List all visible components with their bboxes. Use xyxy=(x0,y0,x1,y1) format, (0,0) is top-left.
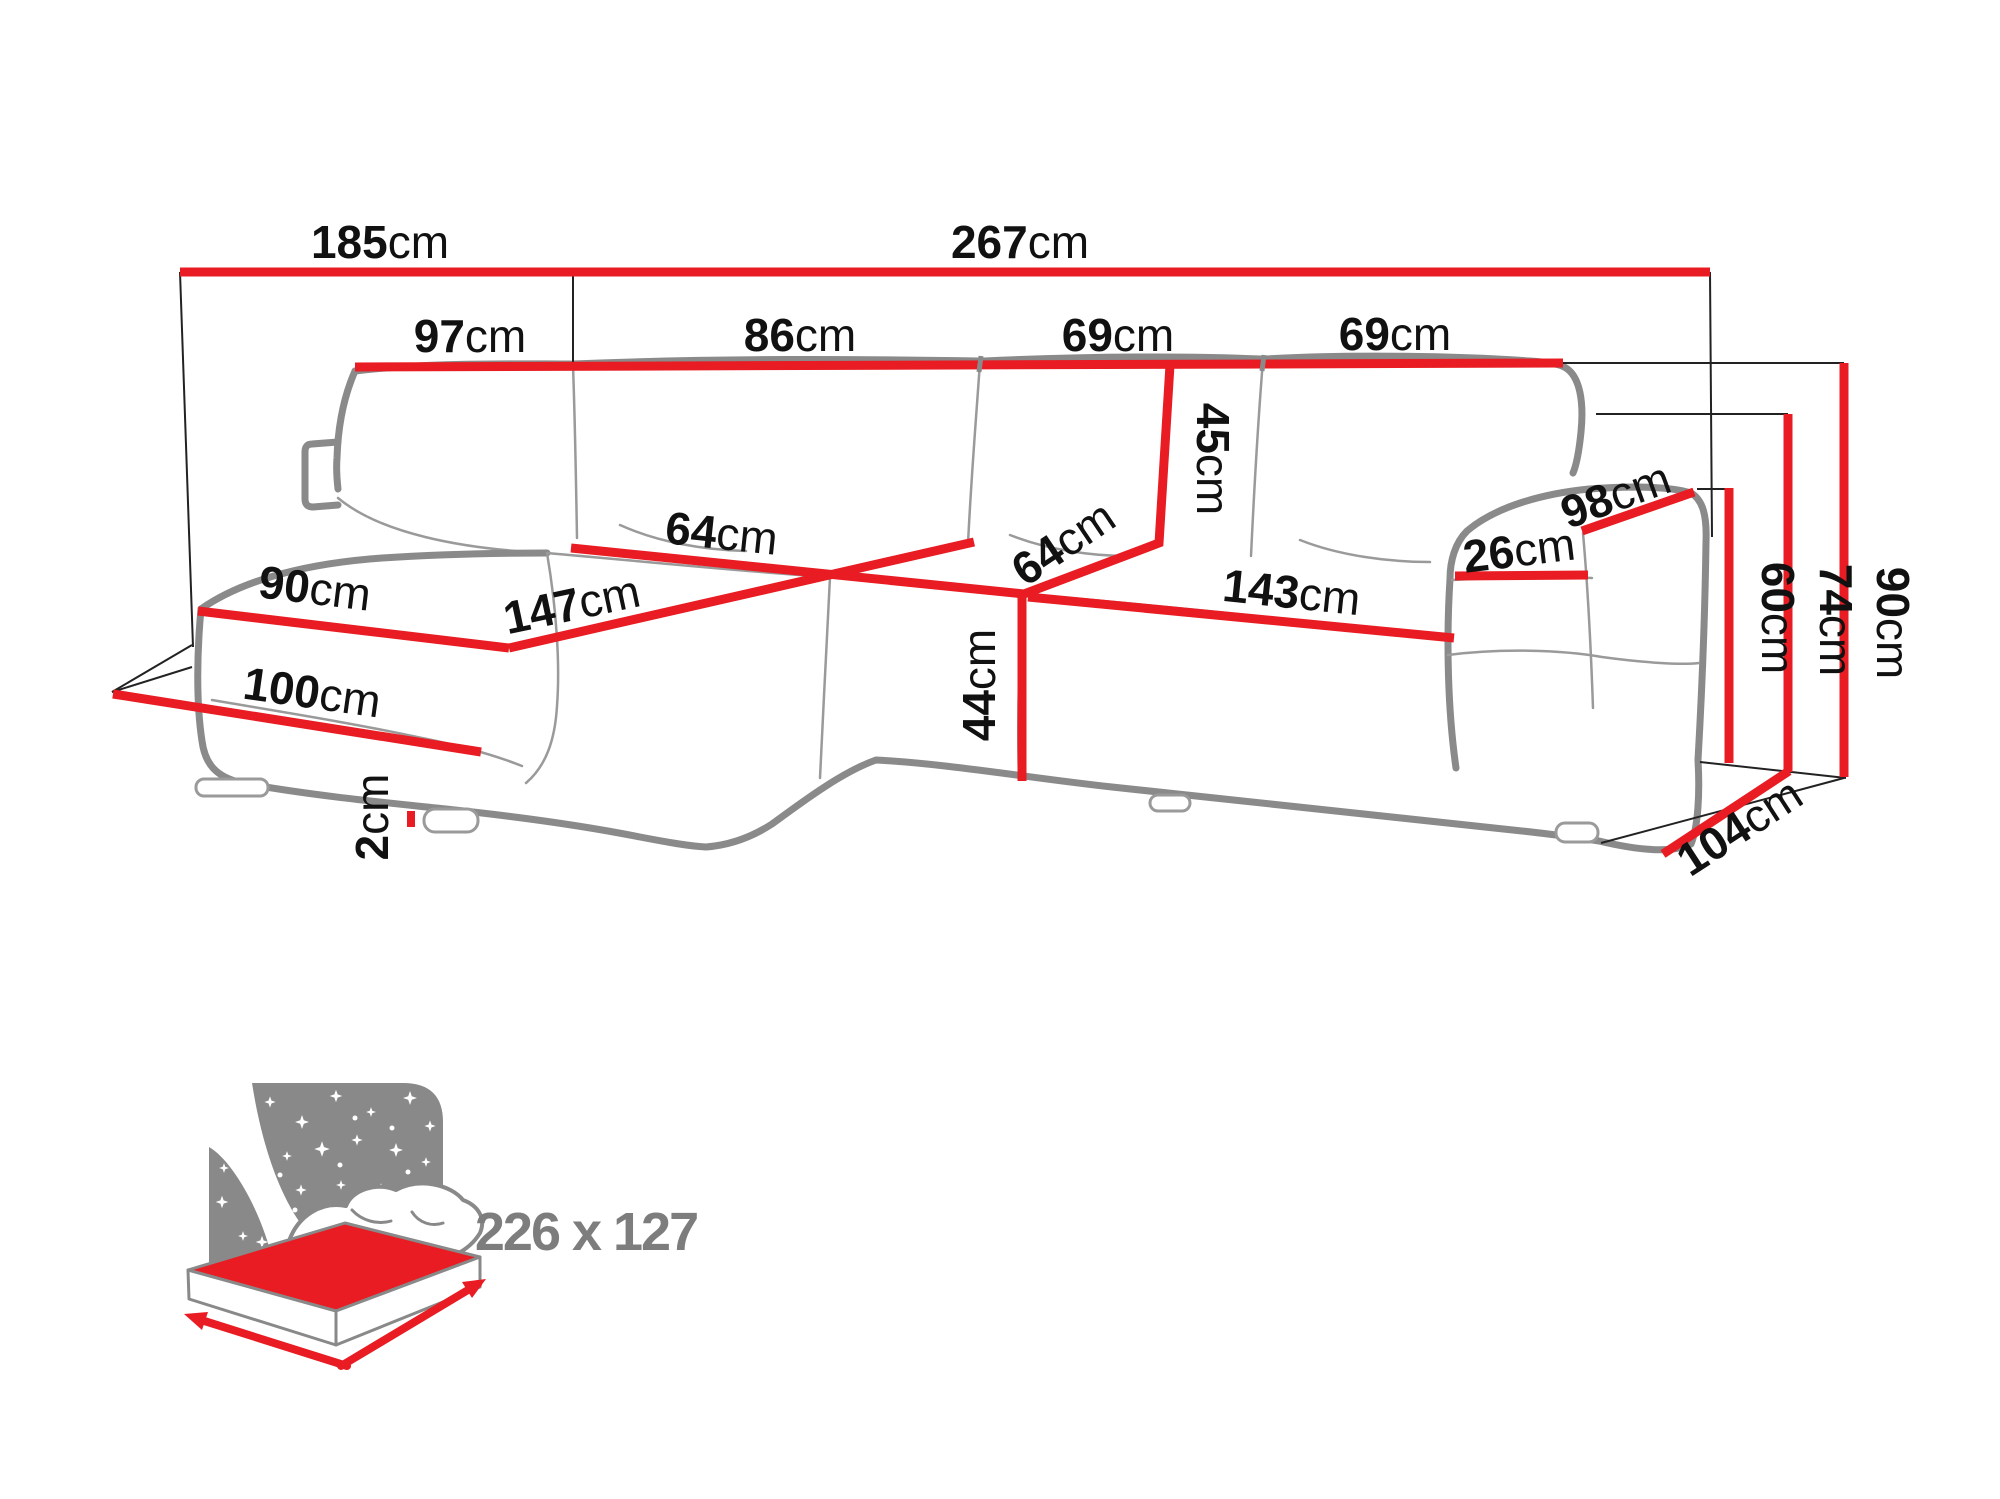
dim-label-185cm: 185cm xyxy=(311,216,449,268)
floor-wedge-bottom xyxy=(112,667,192,692)
dim-label-90cm-chaise: 90cm xyxy=(256,555,374,620)
sofa-leg xyxy=(1150,795,1190,811)
dim-label-69cm-left: 69cm xyxy=(1062,309,1175,361)
corner-seat-seam xyxy=(820,577,830,778)
dim-line-64-left xyxy=(571,548,1024,594)
backrest-top-edge xyxy=(355,356,1582,473)
sofa-dimension-diagram: 185cm 267cm 97cm 86cm 69cm 69cm 45cm 64c… xyxy=(0,0,2000,1499)
backrest-seam-2 xyxy=(968,362,980,544)
sofa-leg xyxy=(424,809,478,832)
backrest-wrinkle-3 xyxy=(1300,540,1430,562)
dim-label-86cm: 86cm xyxy=(744,309,857,361)
chaise-backrest-bottom xyxy=(338,498,547,553)
sofa-leg xyxy=(196,779,268,796)
dim-label-90cm-height: 90cm xyxy=(1867,567,1919,680)
chaise-top-edge xyxy=(201,553,547,609)
floor-wedge-top xyxy=(112,645,192,692)
dim-line-backrest-row xyxy=(355,363,1563,367)
diagram-svg: 185cm 267cm 97cm 86cm 69cm 69cm 45cm 64c… xyxy=(0,0,2000,1499)
dim-label-69cm-right: 69cm xyxy=(1339,308,1452,360)
dim-label-97cm: 97cm xyxy=(414,310,527,362)
dim-label-45cm: 45cm xyxy=(1187,403,1239,516)
armrest-seam-vert xyxy=(1583,533,1593,708)
sofa-outer-contour xyxy=(198,609,1699,850)
bed-headboard-left-patch xyxy=(209,1147,273,1262)
chaise-backrest-left-edge xyxy=(337,371,355,489)
dim-label-2cm: 2cm xyxy=(346,774,398,861)
dim-label-74cm: 74cm xyxy=(1810,564,1862,677)
armrest-seam-mid xyxy=(1448,651,1699,664)
right-extension-line xyxy=(1710,272,1712,537)
dim-label-104cm: 104cm xyxy=(1667,767,1811,886)
sofa-leg xyxy=(1556,823,1598,842)
left-extension-line xyxy=(180,272,193,647)
backrest-seam-1 xyxy=(573,366,577,538)
chaise-side-wing xyxy=(305,442,338,507)
backrest-row-tick xyxy=(1262,355,1264,371)
sleeping-size-label: 226 x 127 xyxy=(475,1202,697,1262)
sofa-line-art xyxy=(196,356,1706,850)
dim-label-44cm: 44cm xyxy=(953,629,1005,742)
dim-label-60cm: 60cm xyxy=(1752,562,1804,675)
backrest-seam-3 xyxy=(1251,360,1263,556)
sofa-bed-icon xyxy=(0,1083,486,1366)
backrest-row-tick xyxy=(979,356,981,372)
dim-label-267cm: 267cm xyxy=(951,216,1089,268)
